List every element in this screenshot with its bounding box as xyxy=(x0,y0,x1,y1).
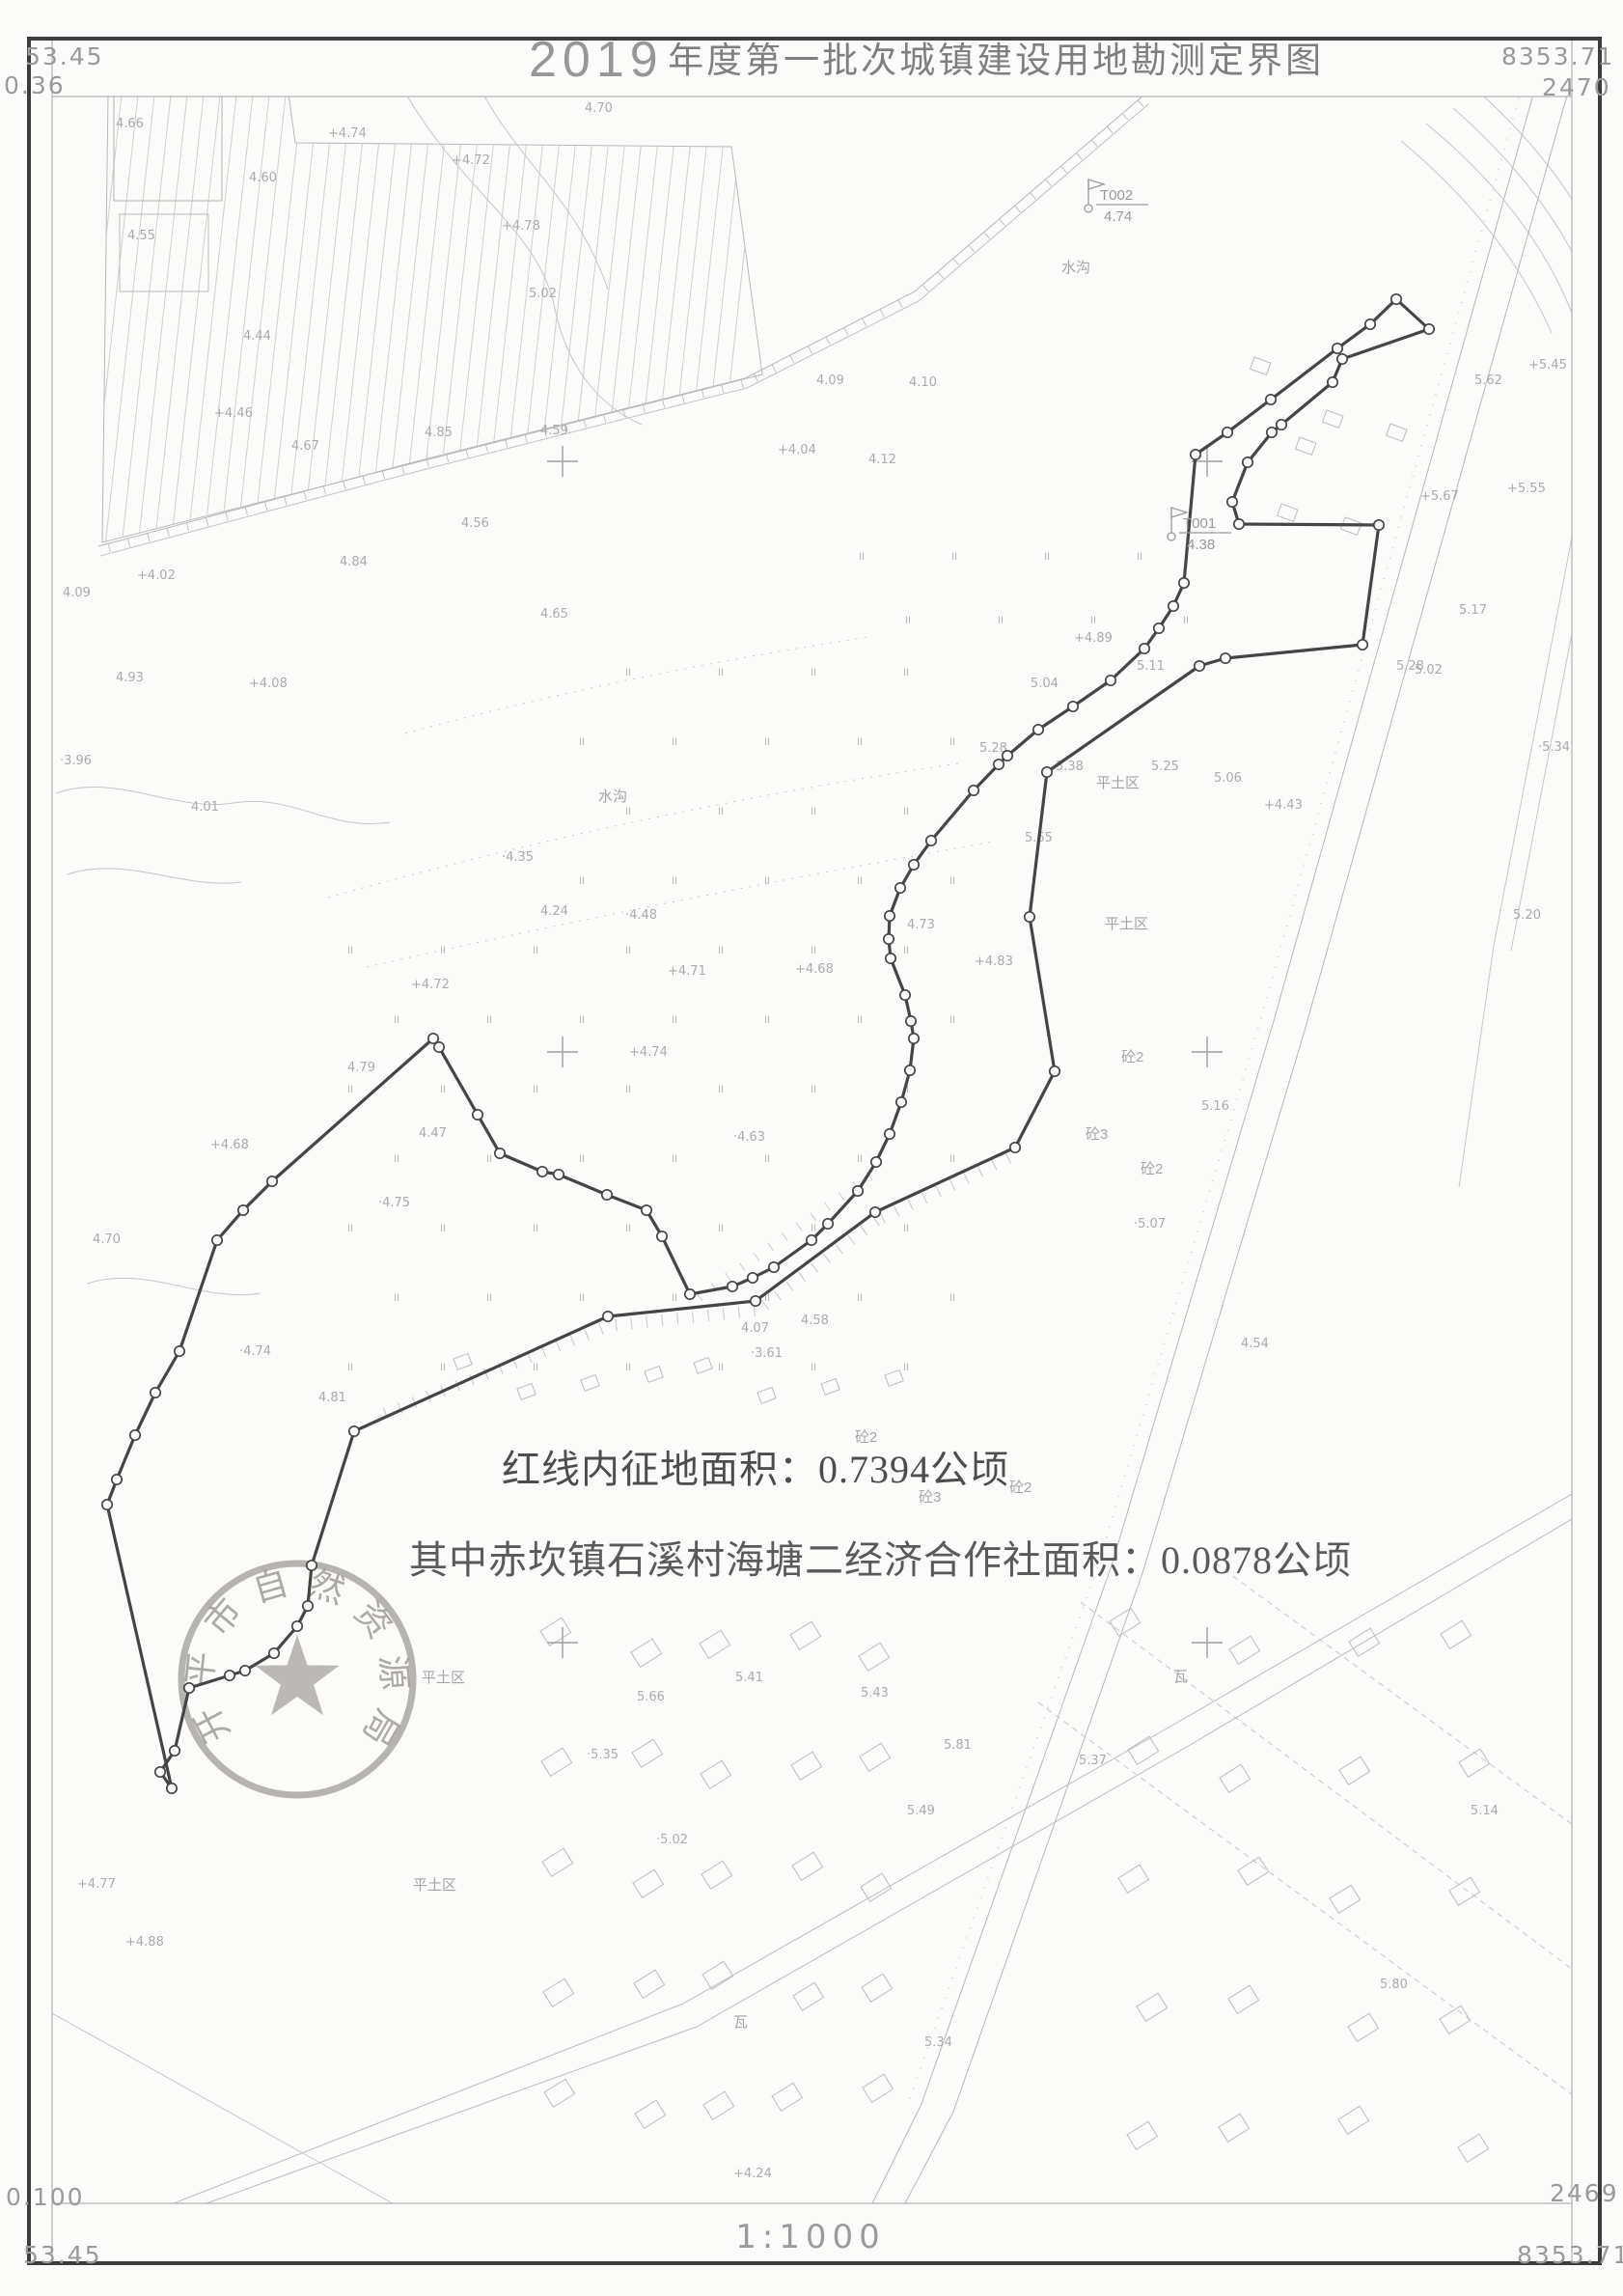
svg-text:+4.83: +4.83 xyxy=(975,954,1013,969)
svg-text:II: II xyxy=(764,875,770,887)
svg-text:II: II xyxy=(672,1153,677,1165)
svg-text:·4.74: ·4.74 xyxy=(239,1344,271,1359)
map-scale-label: 1:1000 xyxy=(704,2218,917,2256)
svg-text:+5.67: +5.67 xyxy=(1420,489,1459,504)
svg-text:4.54: 4.54 xyxy=(1241,1337,1269,1351)
svg-text:II: II xyxy=(949,736,955,748)
svg-text:T002: T002 xyxy=(1100,187,1133,204)
svg-text:II: II xyxy=(857,1292,863,1304)
svg-text:II: II xyxy=(625,1223,631,1234)
svg-text:II: II xyxy=(859,551,865,563)
svg-text:II: II xyxy=(903,945,909,956)
svg-text:II: II xyxy=(951,551,957,563)
svg-text:II: II xyxy=(440,1223,446,1234)
svg-text:II: II xyxy=(764,1014,770,1026)
svg-text:II: II xyxy=(533,1362,538,1373)
svg-text:+4.72: +4.72 xyxy=(411,978,450,992)
svg-text:+4.71: +4.71 xyxy=(668,964,706,979)
svg-text:5.66: 5.66 xyxy=(637,1690,665,1704)
cadastral-map-canvas: IIIIIIIIIIIIIIIIIIIIIIIIIIIIIIIIIIIIIIII… xyxy=(0,0,1623,2296)
svg-text:T001: T001 xyxy=(1183,515,1216,532)
svg-text:II: II xyxy=(718,1223,724,1234)
svg-text:砼3: 砼3 xyxy=(1086,1126,1108,1143)
survey-control-points: T0024.74T0014.38 xyxy=(1085,180,1231,553)
svg-text:4.67: 4.67 xyxy=(291,439,319,454)
svg-text:·5.35: ·5.35 xyxy=(587,1748,619,1762)
svg-text:·4.75: ·4.75 xyxy=(378,1196,410,1210)
svg-text:开: 开 xyxy=(186,1701,237,1750)
svg-text:+4.77: +4.77 xyxy=(77,1877,116,1892)
svg-text:II: II xyxy=(672,1292,677,1304)
svg-text:4.09: 4.09 xyxy=(816,373,844,388)
svg-text:4.81: 4.81 xyxy=(318,1391,346,1405)
coord-bottom-left-easting: 53.45 xyxy=(23,2241,102,2269)
svg-text:+5.45: +5.45 xyxy=(1528,358,1567,373)
svg-text:5.04: 5.04 xyxy=(1031,677,1059,691)
svg-text:5.49: 5.49 xyxy=(907,1804,935,1818)
svg-text:II: II xyxy=(1090,615,1096,626)
svg-text:II: II xyxy=(1137,551,1142,563)
svg-text:5.34: 5.34 xyxy=(924,2035,952,2050)
svg-text:II: II xyxy=(440,1362,446,1373)
svg-text:+4.89: +4.89 xyxy=(1074,631,1113,646)
svg-text:4.74: 4.74 xyxy=(1104,208,1132,225)
spot-elevation-labels: 4.66+4.64+4.744.604.55+4.78+4.724.705.02… xyxy=(60,84,1570,2181)
paddy-field-symbols: IIIIIIIIIIIIIIIIIIIIIIIIIIIIIIIIIIIIIIII… xyxy=(347,551,1189,1373)
svg-text:平土区: 平土区 xyxy=(1096,775,1140,791)
svg-text:局: 局 xyxy=(355,1702,407,1753)
svg-text:II: II xyxy=(857,1014,863,1026)
svg-text:II: II xyxy=(903,667,909,678)
svg-text:+4.68: +4.68 xyxy=(795,962,834,977)
coord-top-left-easting: 53.45 xyxy=(25,42,104,70)
svg-text:+4.74: +4.74 xyxy=(328,126,367,141)
svg-text:5.17: 5.17 xyxy=(1459,603,1487,618)
svg-text:II: II xyxy=(903,1223,909,1234)
svg-text:II: II xyxy=(394,1153,399,1165)
svg-text:砼2: 砼2 xyxy=(1141,1161,1163,1177)
svg-text:+4.08: +4.08 xyxy=(249,677,288,691)
svg-text:5.81: 5.81 xyxy=(944,1738,972,1753)
svg-text:4.60: 4.60 xyxy=(249,171,277,185)
svg-text:5.25: 5.25 xyxy=(1151,760,1179,774)
svg-text:4.70: 4.70 xyxy=(585,101,613,116)
coord-bottom-right-easting: 8353.71 xyxy=(1517,2241,1623,2269)
svg-text:4.09: 4.09 xyxy=(63,586,91,600)
svg-text:+4.04: +4.04 xyxy=(778,443,816,457)
svg-text:II: II xyxy=(579,875,585,887)
svg-text:水沟: 水沟 xyxy=(598,788,627,805)
svg-text:II: II xyxy=(903,1362,909,1373)
svg-text:+4.02: +4.02 xyxy=(137,568,176,583)
svg-text:4.44: 4.44 xyxy=(243,329,271,344)
svg-text:II: II xyxy=(949,1014,955,1026)
svg-text:·5.02: ·5.02 xyxy=(656,1833,688,1847)
svg-text:II: II xyxy=(811,1362,816,1373)
svg-text:II: II xyxy=(718,1362,724,1373)
map-frame xyxy=(29,39,1600,2263)
svg-text:II: II xyxy=(1183,615,1189,626)
svg-text:+4.88: +4.88 xyxy=(125,1935,164,1950)
svg-text:II: II xyxy=(625,667,631,678)
svg-text:·3.96: ·3.96 xyxy=(60,754,92,768)
svg-text:II: II xyxy=(347,1223,353,1234)
svg-text:II: II xyxy=(764,1153,770,1165)
svg-text:II: II xyxy=(486,1153,492,1165)
svg-text:5.11: 5.11 xyxy=(1137,659,1165,674)
svg-text:4.47: 4.47 xyxy=(419,1126,447,1141)
svg-text:II: II xyxy=(347,1362,353,1373)
svg-text:5.02: 5.02 xyxy=(529,287,557,301)
svg-text:II: II xyxy=(347,945,353,956)
svg-text:II: II xyxy=(764,736,770,748)
svg-text:+4.78: +4.78 xyxy=(502,219,540,234)
svg-text:II: II xyxy=(625,1084,631,1095)
svg-text:II: II xyxy=(625,1362,631,1373)
svg-text:·4.63: ·4.63 xyxy=(733,1130,765,1145)
svg-text:II: II xyxy=(625,945,631,956)
svg-text:砼2: 砼2 xyxy=(1009,1480,1032,1496)
svg-text:II: II xyxy=(394,1292,399,1304)
svg-text:源: 源 xyxy=(373,1654,415,1692)
title-year: 2019 xyxy=(529,32,664,88)
red-line-area-note: 红线内征地面积：0.7394公顷 xyxy=(502,1438,1009,1494)
coord-top-right-northing: 2470 xyxy=(1542,73,1611,101)
svg-text:II: II xyxy=(533,1084,538,1095)
svg-text:4.93: 4.93 xyxy=(116,671,144,685)
svg-text:·3.61: ·3.61 xyxy=(751,1346,783,1361)
svg-text:II: II xyxy=(811,945,816,956)
svg-text:5.62: 5.62 xyxy=(1474,373,1502,388)
svg-text:II: II xyxy=(949,1292,955,1304)
svg-text:II: II xyxy=(579,1292,585,1304)
terrain-text-labels: 平土区平土区平土区平土区水沟水沟砼3砼2砼2砼2砼3砼2瓦瓦 xyxy=(413,260,1188,2031)
svg-text:·4.48: ·4.48 xyxy=(625,908,657,923)
svg-text:II: II xyxy=(718,667,724,678)
svg-text:·5.07: ·5.07 xyxy=(1134,1217,1166,1231)
svg-text:4.01: 4.01 xyxy=(191,800,219,815)
svg-text:平: 平 xyxy=(179,1649,223,1688)
svg-text:4.10: 4.10 xyxy=(909,375,937,390)
svg-text:自: 自 xyxy=(248,1563,292,1610)
svg-text:4.65: 4.65 xyxy=(540,607,568,622)
svg-text:4.12: 4.12 xyxy=(868,453,896,467)
svg-text:II: II xyxy=(579,736,585,748)
svg-text:4.38: 4.38 xyxy=(1187,537,1215,553)
svg-text:II: II xyxy=(811,806,816,817)
svg-text:II: II xyxy=(811,667,816,678)
svg-text:II: II xyxy=(857,875,863,887)
svg-text:4.66: 4.66 xyxy=(116,117,144,131)
coord-top-left-northing: 0.36 xyxy=(4,71,66,99)
svg-text:II: II xyxy=(718,945,724,956)
svg-text:·4.35: ·4.35 xyxy=(502,850,534,865)
svg-text:II: II xyxy=(811,1084,816,1095)
svg-text:4.07: 4.07 xyxy=(741,1321,769,1336)
svg-text:+4.43: +4.43 xyxy=(1264,798,1303,813)
svg-text:·5.34: ·5.34 xyxy=(1538,740,1570,755)
svg-text:4.59: 4.59 xyxy=(540,424,568,438)
svg-text:4.84: 4.84 xyxy=(340,555,368,569)
svg-text:II: II xyxy=(579,1153,585,1165)
svg-text:II: II xyxy=(718,1084,724,1095)
svg-text:4.55: 4.55 xyxy=(127,229,155,243)
svg-text:II: II xyxy=(486,1014,492,1026)
svg-text:II: II xyxy=(672,875,677,887)
svg-text:瓦: 瓦 xyxy=(1173,1669,1188,1685)
svg-text:4.70: 4.70 xyxy=(93,1232,121,1247)
svg-text:+4.68: +4.68 xyxy=(210,1138,249,1152)
svg-text:5.43: 5.43 xyxy=(861,1686,889,1701)
basemap-linework xyxy=(52,77,1613,2286)
svg-text:II: II xyxy=(811,1223,816,1234)
coord-top-right-easting: 8353.71 xyxy=(1501,42,1614,70)
svg-text:II: II xyxy=(718,806,724,817)
svg-text:资: 资 xyxy=(347,1593,399,1646)
svg-text:II: II xyxy=(440,945,446,956)
coord-bottom-right-northing: 2469 xyxy=(1550,2179,1619,2207)
cooperative-area-note: 其中赤坎镇石溪村海塘二经济合作社面积：0.0878公顷 xyxy=(409,1529,1352,1585)
svg-text:+5.55: +5.55 xyxy=(1507,482,1546,496)
svg-text:市: 市 xyxy=(197,1591,250,1643)
svg-text:5.20: 5.20 xyxy=(1513,908,1541,923)
svg-text:瓦: 瓦 xyxy=(733,2014,748,2031)
svg-text:II: II xyxy=(440,1084,446,1095)
svg-text:II: II xyxy=(672,1014,677,1026)
svg-text:4.24: 4.24 xyxy=(540,904,568,919)
svg-text:II: II xyxy=(347,1084,353,1095)
svg-text:II: II xyxy=(672,736,677,748)
svg-text:5.37: 5.37 xyxy=(1079,1754,1107,1768)
title-text: 年度第一批次城镇建设用地勘测定界图 xyxy=(668,41,1324,80)
svg-text:II: II xyxy=(625,806,631,817)
svg-text:II: II xyxy=(486,1292,492,1304)
svg-text:II: II xyxy=(903,806,909,817)
svg-text:II: II xyxy=(394,1014,399,1026)
svg-text:5.80: 5.80 xyxy=(1380,1978,1408,1992)
svg-text:5.16: 5.16 xyxy=(1201,1099,1229,1114)
svg-text:+4.24: +4.24 xyxy=(733,2167,772,2181)
svg-text:水沟: 水沟 xyxy=(1061,260,1090,276)
svg-text:4.56: 4.56 xyxy=(461,516,489,531)
svg-text:II: II xyxy=(857,736,863,748)
coord-bottom-left-northing: 0.100 xyxy=(6,2183,85,2211)
svg-text:4.85: 4.85 xyxy=(425,426,453,440)
svg-text:II: II xyxy=(1044,551,1050,563)
svg-text:5.14: 5.14 xyxy=(1471,1804,1499,1818)
svg-text:II: II xyxy=(533,945,538,956)
svg-text:II: II xyxy=(533,1223,538,1234)
svg-text:II: II xyxy=(905,615,911,626)
svg-text:5.41: 5.41 xyxy=(735,1671,763,1685)
svg-text:4.73: 4.73 xyxy=(907,918,935,932)
svg-text:+4.72: +4.72 xyxy=(452,153,490,168)
svg-text:4.58: 4.58 xyxy=(801,1314,829,1328)
svg-text:II: II xyxy=(998,615,1004,626)
map-title: 2019 年度第一批次城镇建设用地勘测定界图 xyxy=(529,31,1324,89)
svg-text:+4.74: +4.74 xyxy=(629,1045,668,1060)
svg-text:砼2: 砼2 xyxy=(1121,1049,1143,1065)
svg-text:平土区: 平土区 xyxy=(413,1877,456,1894)
survey-map-sheet: IIIIIIIIIIIIIIIIIIIIIIIIIIIIIIIIIIIIIIII… xyxy=(0,0,1623,2296)
svg-text:II: II xyxy=(579,1014,585,1026)
svg-text:4.79: 4.79 xyxy=(347,1061,375,1075)
svg-text:平土区: 平土区 xyxy=(422,1670,465,1686)
svg-text:II: II xyxy=(949,1153,955,1165)
svg-text:II: II xyxy=(949,875,955,887)
svg-text:5.06: 5.06 xyxy=(1214,771,1242,786)
svg-text:5.28: 5.28 xyxy=(1396,659,1424,674)
svg-text:+4.46: +4.46 xyxy=(214,406,253,421)
svg-text:平土区: 平土区 xyxy=(1105,916,1148,932)
svg-text:II: II xyxy=(857,1153,863,1165)
